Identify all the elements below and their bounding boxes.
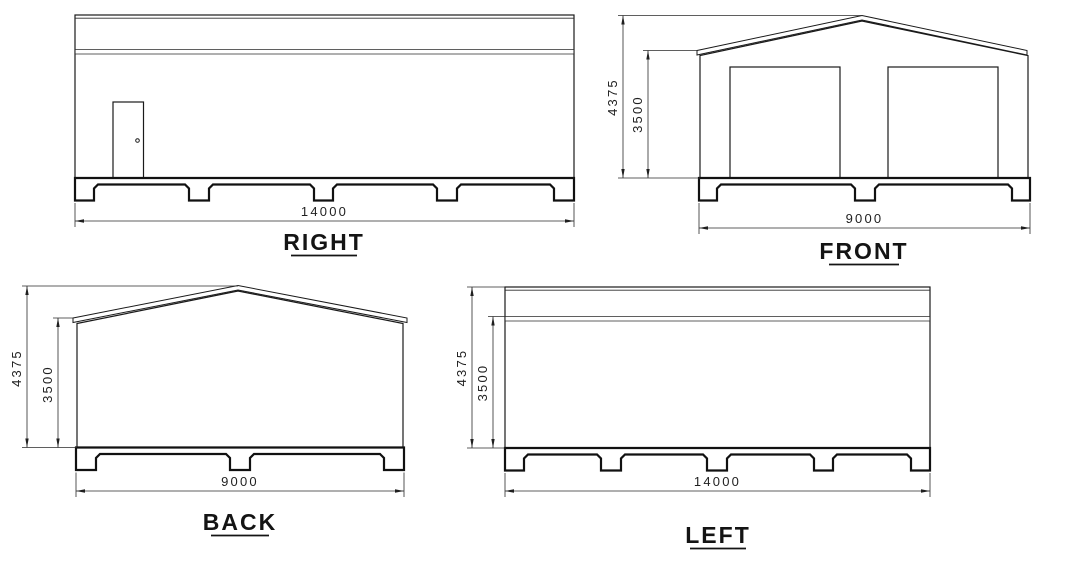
arrow-down-icon: [470, 439, 473, 448]
dimension-value: 4375: [454, 349, 469, 387]
elevation-drawing: 14000 RIGHT 4375 3500: [0, 0, 1080, 574]
arrow-left-icon: [76, 489, 85, 492]
drawing-canvas: 14000 RIGHT 4375 3500: [0, 0, 1080, 574]
view-back: 4375 3500 9000 BACK: [9, 286, 407, 536]
dimension-value: 9000: [846, 211, 884, 226]
dimension-value: 3500: [630, 95, 645, 133]
left-building-elevation: [505, 287, 930, 471]
back-eave-height-dimension: 3500: [40, 318, 73, 448]
arrow-down-icon: [491, 439, 494, 448]
right-foundation-base: [75, 178, 574, 201]
arrow-down-icon: [646, 169, 649, 178]
back-width-dimension: 9000: [76, 473, 404, 498]
view-title-left: LEFT: [685, 522, 751, 548]
back-building-elevation: [73, 286, 407, 471]
door-knob: [136, 139, 140, 143]
left-eave-band: [506, 317, 930, 322]
left-width-dimension: 14000: [505, 473, 930, 497]
view-left: 4375 3500 14000 LEFT: [454, 287, 930, 549]
arrow-up-icon: [56, 318, 59, 327]
dimension-value: 14000: [694, 474, 741, 489]
front-width-dimension: 9000: [699, 203, 1030, 234]
arrow-right-icon: [565, 219, 574, 222]
dimension-value: 4375: [605, 78, 620, 116]
dimension-value: 9000: [221, 474, 259, 489]
arrow-up-icon: [646, 51, 649, 60]
arrow-down-icon: [621, 169, 624, 178]
right-eave-band: [76, 50, 574, 55]
arrow-left-icon: [505, 489, 514, 492]
arrow-left-icon: [75, 219, 84, 222]
dimension-value: 4375: [9, 349, 24, 387]
arrow-up-icon: [491, 317, 494, 326]
dimension-value: 3500: [40, 365, 55, 403]
left-wall-corrugated: [505, 287, 930, 448]
back-gable-wall-corrugated: [77, 291, 403, 448]
back-foundation-base: [76, 448, 404, 471]
arrow-right-icon: [921, 489, 930, 492]
right-width-dimension: 14000: [75, 203, 574, 227]
view-title-front: FRONT: [819, 238, 908, 264]
arrow-down-icon: [56, 439, 59, 448]
front-eave-height-dimension: 3500: [630, 51, 697, 179]
door: [113, 102, 144, 178]
front-building-elevation: [697, 16, 1030, 201]
arrow-up-icon: [621, 16, 624, 25]
garage-door-opening-left: [730, 67, 840, 178]
right-wall-corrugated: [75, 15, 574, 178]
view-front: 4375 3500 9000 FRONT: [605, 16, 1030, 265]
dimension-value: 14000: [301, 204, 348, 219]
garage-door-opening-right: [888, 67, 998, 178]
view-right: 14000 RIGHT: [75, 15, 574, 256]
arrow-right-icon: [1021, 226, 1030, 229]
arrow-left-icon: [699, 226, 708, 229]
left-foundation-base: [505, 448, 930, 471]
left-eave-height-dimension: 3500: [475, 317, 505, 449]
arrow-up-icon: [470, 287, 473, 296]
view-title-back: BACK: [203, 509, 277, 535]
arrow-up-icon: [25, 286, 28, 295]
arrow-down-icon: [25, 439, 28, 448]
right-building-elevation: [75, 15, 574, 201]
dimension-value: 3500: [475, 364, 490, 402]
view-title-right: RIGHT: [283, 229, 365, 255]
front-foundation-base: [699, 178, 1030, 201]
arrow-right-icon: [395, 489, 404, 492]
